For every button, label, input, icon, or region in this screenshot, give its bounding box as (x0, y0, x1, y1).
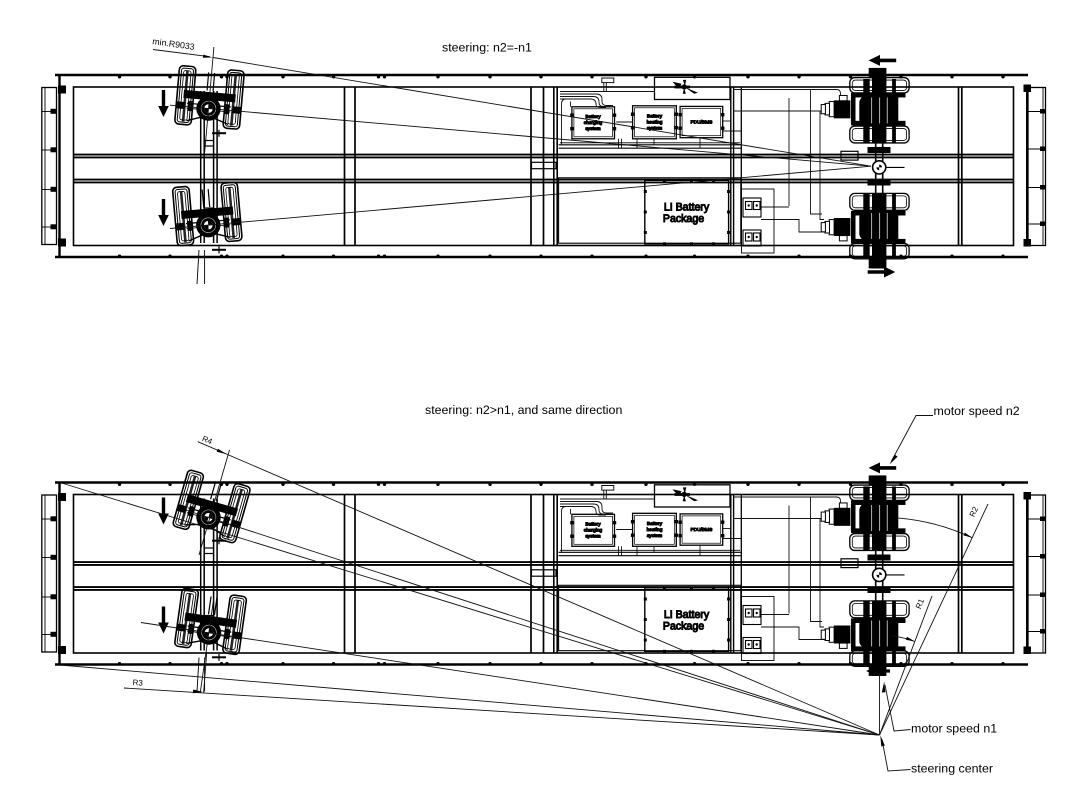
svg-text:motor speed n1: motor speed n1 (911, 722, 997, 736)
svg-text:R3: R3 (132, 678, 143, 688)
svg-text:motor speed n2: motor speed n2 (934, 404, 1020, 418)
svg-text:steering center: steering center (911, 762, 993, 776)
svg-text:steering: n2>n1, and same dir: steering: n2>n1, and same direction (425, 403, 622, 417)
svg-text:steering: n2=-n1: steering: n2=-n1 (442, 41, 532, 55)
